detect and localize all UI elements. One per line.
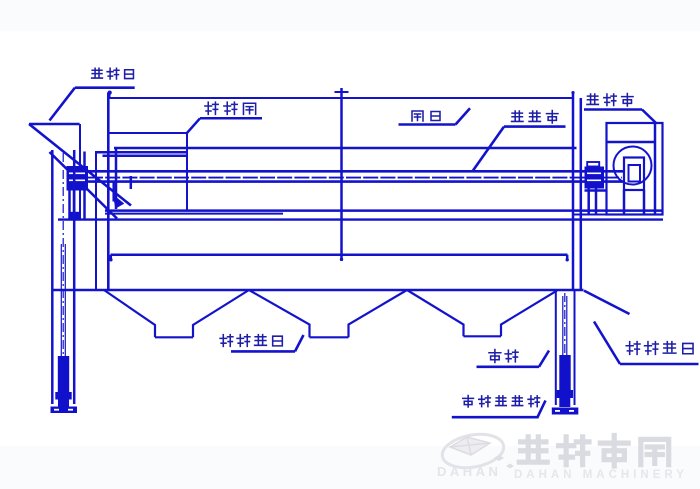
svg-text:DAHAN MACHINERY: DAHAN MACHINERY xyxy=(514,469,688,481)
svg-text:DAHAN: DAHAN xyxy=(437,464,501,479)
